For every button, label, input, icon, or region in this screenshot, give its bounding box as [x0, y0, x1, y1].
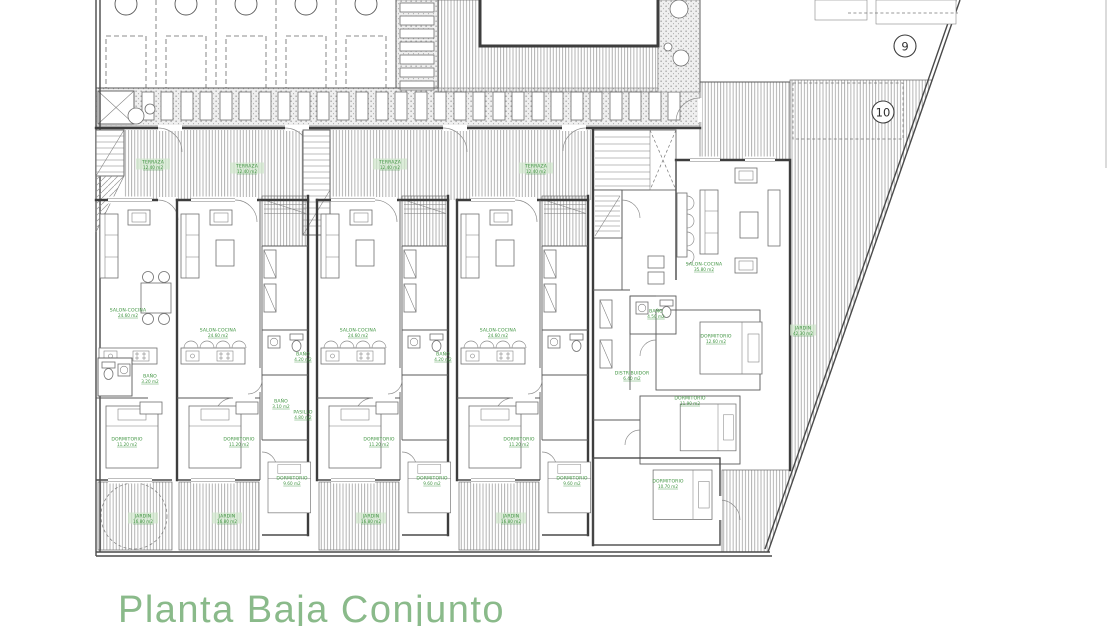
pool-area: [438, 0, 700, 92]
svg-text:35.80 m2: 35.80 m2: [694, 267, 714, 272]
room-label: JARDIN16.80 m2: [356, 513, 386, 524]
plant-icon: [128, 108, 144, 124]
room-label: DORMITORIO11.20 m2: [503, 437, 535, 447]
svg-text:12.40 m2: 12.40 m2: [380, 165, 400, 170]
svg-text:12.40 m2: 12.40 m2: [143, 165, 163, 170]
svg-text:11.20 m2: 11.20 m2: [369, 442, 389, 447]
room-label: DORMITORIO11.20 m2: [223, 437, 255, 447]
room-label: BAÑO3.10 m2: [272, 398, 290, 409]
outdoor-surfaces: [96, 0, 932, 552]
room-label: SALON-COCINA24.60 m2: [110, 308, 147, 318]
svg-text:12.40 m2: 12.40 m2: [237, 169, 257, 174]
swimming-pool: [480, 0, 658, 46]
parking-tree-icon: [115, 0, 137, 15]
svg-text:42.30 m2: 42.30 m2: [793, 331, 813, 336]
plot-marker-9: 9: [894, 35, 916, 57]
svg-text:9.60 m2: 9.60 m2: [563, 481, 581, 486]
plot-marker-10: 10: [872, 101, 894, 123]
room-label: TERRAZA12.40 m2: [230, 163, 264, 174]
unit-d: [457, 196, 591, 550]
svg-text:10.70 m2: 10.70 m2: [658, 484, 678, 489]
svg-text:11.90 m2: 11.90 m2: [680, 401, 700, 406]
svg-text:12.40 m2: 12.40 m2: [526, 169, 546, 174]
parking-area: [96, 0, 438, 88]
unit-c: [317, 196, 451, 550]
floor-plan-drawing: 9 10: [0, 0, 1110, 626]
room-label: TERRAZA12.40 m2: [519, 163, 553, 174]
plant-icon: [664, 43, 672, 51]
svg-text:4.80 m2: 4.80 m2: [294, 415, 312, 420]
svg-text:9.60 m2: 9.60 m2: [423, 481, 441, 486]
room-label: SALON-COCINA24.60 m2: [340, 328, 377, 338]
room-label: BAÑO3.20 m2: [141, 373, 159, 384]
room-label: JARDIN42.30 m2: [790, 325, 816, 336]
svg-text:4.20 m2: 4.20 m2: [294, 357, 312, 362]
plant-icon: [145, 104, 155, 114]
room-label: BAÑO4.20 m2: [294, 351, 312, 362]
parking-tree-icon: [295, 0, 317, 15]
room-label: DORMITORIO11.20 m2: [363, 437, 395, 447]
room-label: JARDIN16.80 m2: [212, 513, 242, 524]
room-label: DISTRIBUIDOR6.40 m2: [615, 371, 650, 381]
svg-text:11.20 m2: 11.20 m2: [509, 442, 529, 447]
svg-text:16.80 m2: 16.80 m2: [217, 519, 237, 524]
room-label: BAÑO4.20 m2: [434, 351, 452, 362]
svg-text:4.50 m2: 4.50 m2: [647, 314, 665, 319]
room-label: PASILLO4.80 m2: [293, 410, 312, 420]
stepping-stone-path-vertical: [396, 0, 438, 90]
outbuilding: [815, 0, 867, 20]
svg-text:24.60 m2: 24.60 m2: [118, 313, 138, 318]
svg-text:11.20 m2: 11.20 m2: [117, 442, 137, 447]
stair-central: [593, 130, 676, 238]
svg-text:3.10 m2: 3.10 m2: [272, 404, 290, 409]
stepping-stone-path-horizontal: [96, 88, 700, 126]
outbuilding: [876, 0, 956, 24]
room-label: SALON-COCINA24.60 m2: [480, 328, 517, 338]
svg-text:16.80 m2: 16.80 m2: [501, 519, 521, 524]
room-label: BAÑO4.50 m2: [647, 308, 665, 319]
room-label: SALON-COCINA35.80 m2: [686, 262, 723, 272]
room-label: TERRAZA12.40 m2: [373, 159, 407, 170]
svg-text:3.20 m2: 3.20 m2: [141, 379, 159, 384]
plant-icon: [673, 50, 689, 66]
plan-title: Planta Baja Conjunto: [118, 589, 505, 626]
room-label: JARDIN16.80 m2: [128, 513, 158, 524]
parking-tree-icon: [235, 0, 257, 15]
parking-tree-icon: [355, 0, 377, 15]
svg-text:16.80 m2: 16.80 m2: [361, 519, 381, 524]
room-label: TERRAZA12.40 m2: [136, 159, 170, 170]
room-label: SALON-COCINA24.60 m2: [200, 328, 237, 338]
plot-number: 10: [876, 106, 891, 120]
plant-icon: [670, 0, 688, 18]
svg-text:16.80 m2: 16.80 m2: [133, 519, 153, 524]
parking-tree-icon: [175, 0, 197, 15]
plot-number: 9: [901, 40, 908, 54]
svg-text:12.60 m2: 12.60 m2: [706, 339, 726, 344]
svg-text:9.60 m2: 9.60 m2: [283, 481, 301, 486]
end-unit-terrace-hatch: [700, 82, 790, 160]
svg-text:24.60 m2: 24.60 m2: [208, 333, 228, 338]
svg-text:6.40 m2: 6.40 m2: [623, 376, 641, 381]
svg-text:24.60 m2: 24.60 m2: [348, 333, 368, 338]
unit-b: [177, 196, 311, 550]
svg-text:4.20 m2: 4.20 m2: [434, 357, 452, 362]
room-label: JARDIN16.80 m2: [496, 513, 526, 524]
floorplan-sheet: 9 10: [0, 0, 1110, 626]
svg-text:11.20 m2: 11.20 m2: [229, 442, 249, 447]
svg-text:24.60 m2: 24.60 m2: [488, 333, 508, 338]
